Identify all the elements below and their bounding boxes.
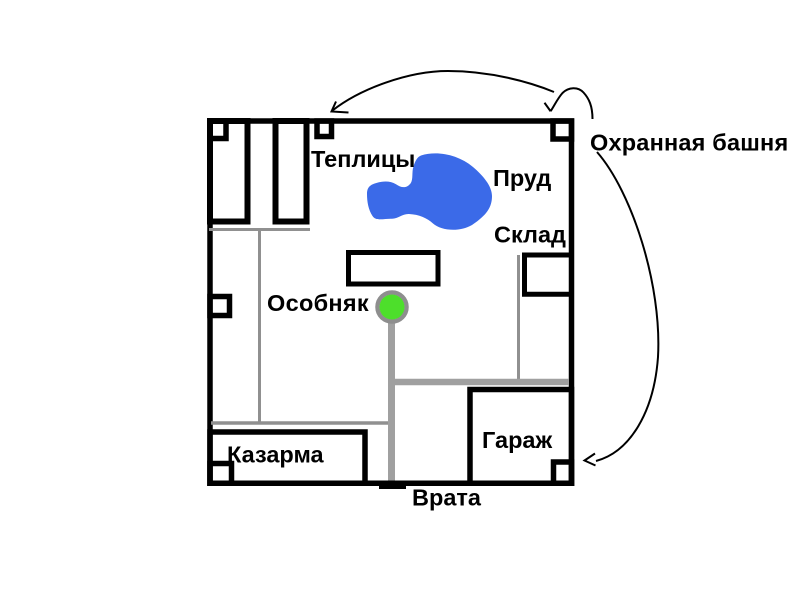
svg-text:Склад: Склад	[494, 222, 566, 248]
svg-text:Особняк: Особняк	[267, 290, 369, 316]
svg-text:Охранная башня: Охранная башня	[590, 130, 788, 156]
svg-text:Теплицы: Теплицы	[311, 146, 415, 172]
svg-text:Казарма: Казарма	[227, 442, 325, 468]
svg-text:Пруд: Пруд	[493, 165, 551, 191]
svg-text:Врата: Врата	[412, 485, 482, 511]
svg-text:Гараж: Гараж	[482, 427, 553, 453]
